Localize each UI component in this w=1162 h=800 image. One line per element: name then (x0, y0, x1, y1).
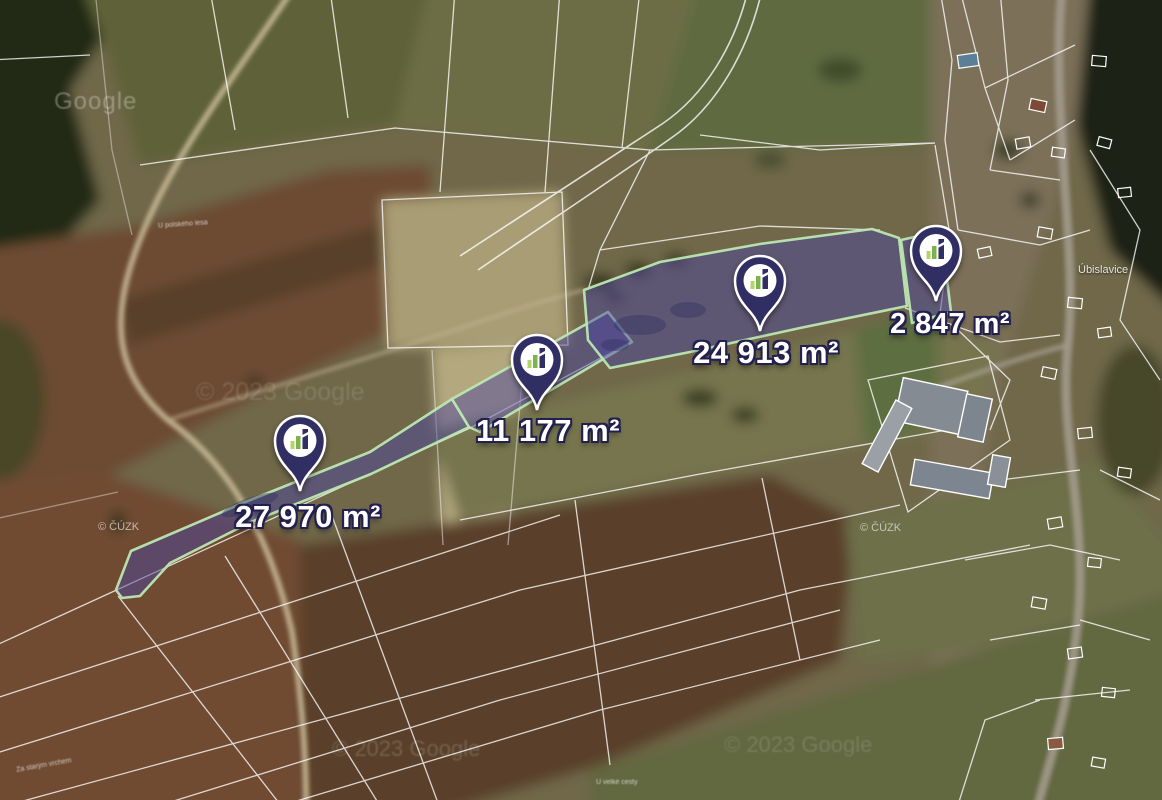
parcel-area-label-4: 2 847 m² (872, 308, 1028, 341)
map-pin-icon (510, 333, 564, 413)
parcel-area-label-3: 24 913 m² (680, 335, 852, 371)
satellite-map-canvas[interactable]: Google © 2023 Google © 2023 Google © 202… (0, 0, 1162, 800)
map-pin-icon (273, 414, 327, 494)
parcel-area-label-1: 27 970 m² (222, 499, 394, 535)
parcel-pin-2 map-pin-icon[interactable] (510, 333, 564, 413)
parcel-area-label-2: 11 177 m² (462, 413, 634, 449)
parcel-pin-3 map-pin-icon[interactable] (733, 254, 787, 334)
parcel-pin-1 map-pin-icon[interactable] (273, 414, 327, 494)
map-pin-icon (909, 224, 963, 304)
map-imagery (0, 0, 1162, 800)
map-pin-icon (733, 254, 787, 334)
parcel-pin-4 map-pin-icon[interactable] (909, 224, 963, 304)
